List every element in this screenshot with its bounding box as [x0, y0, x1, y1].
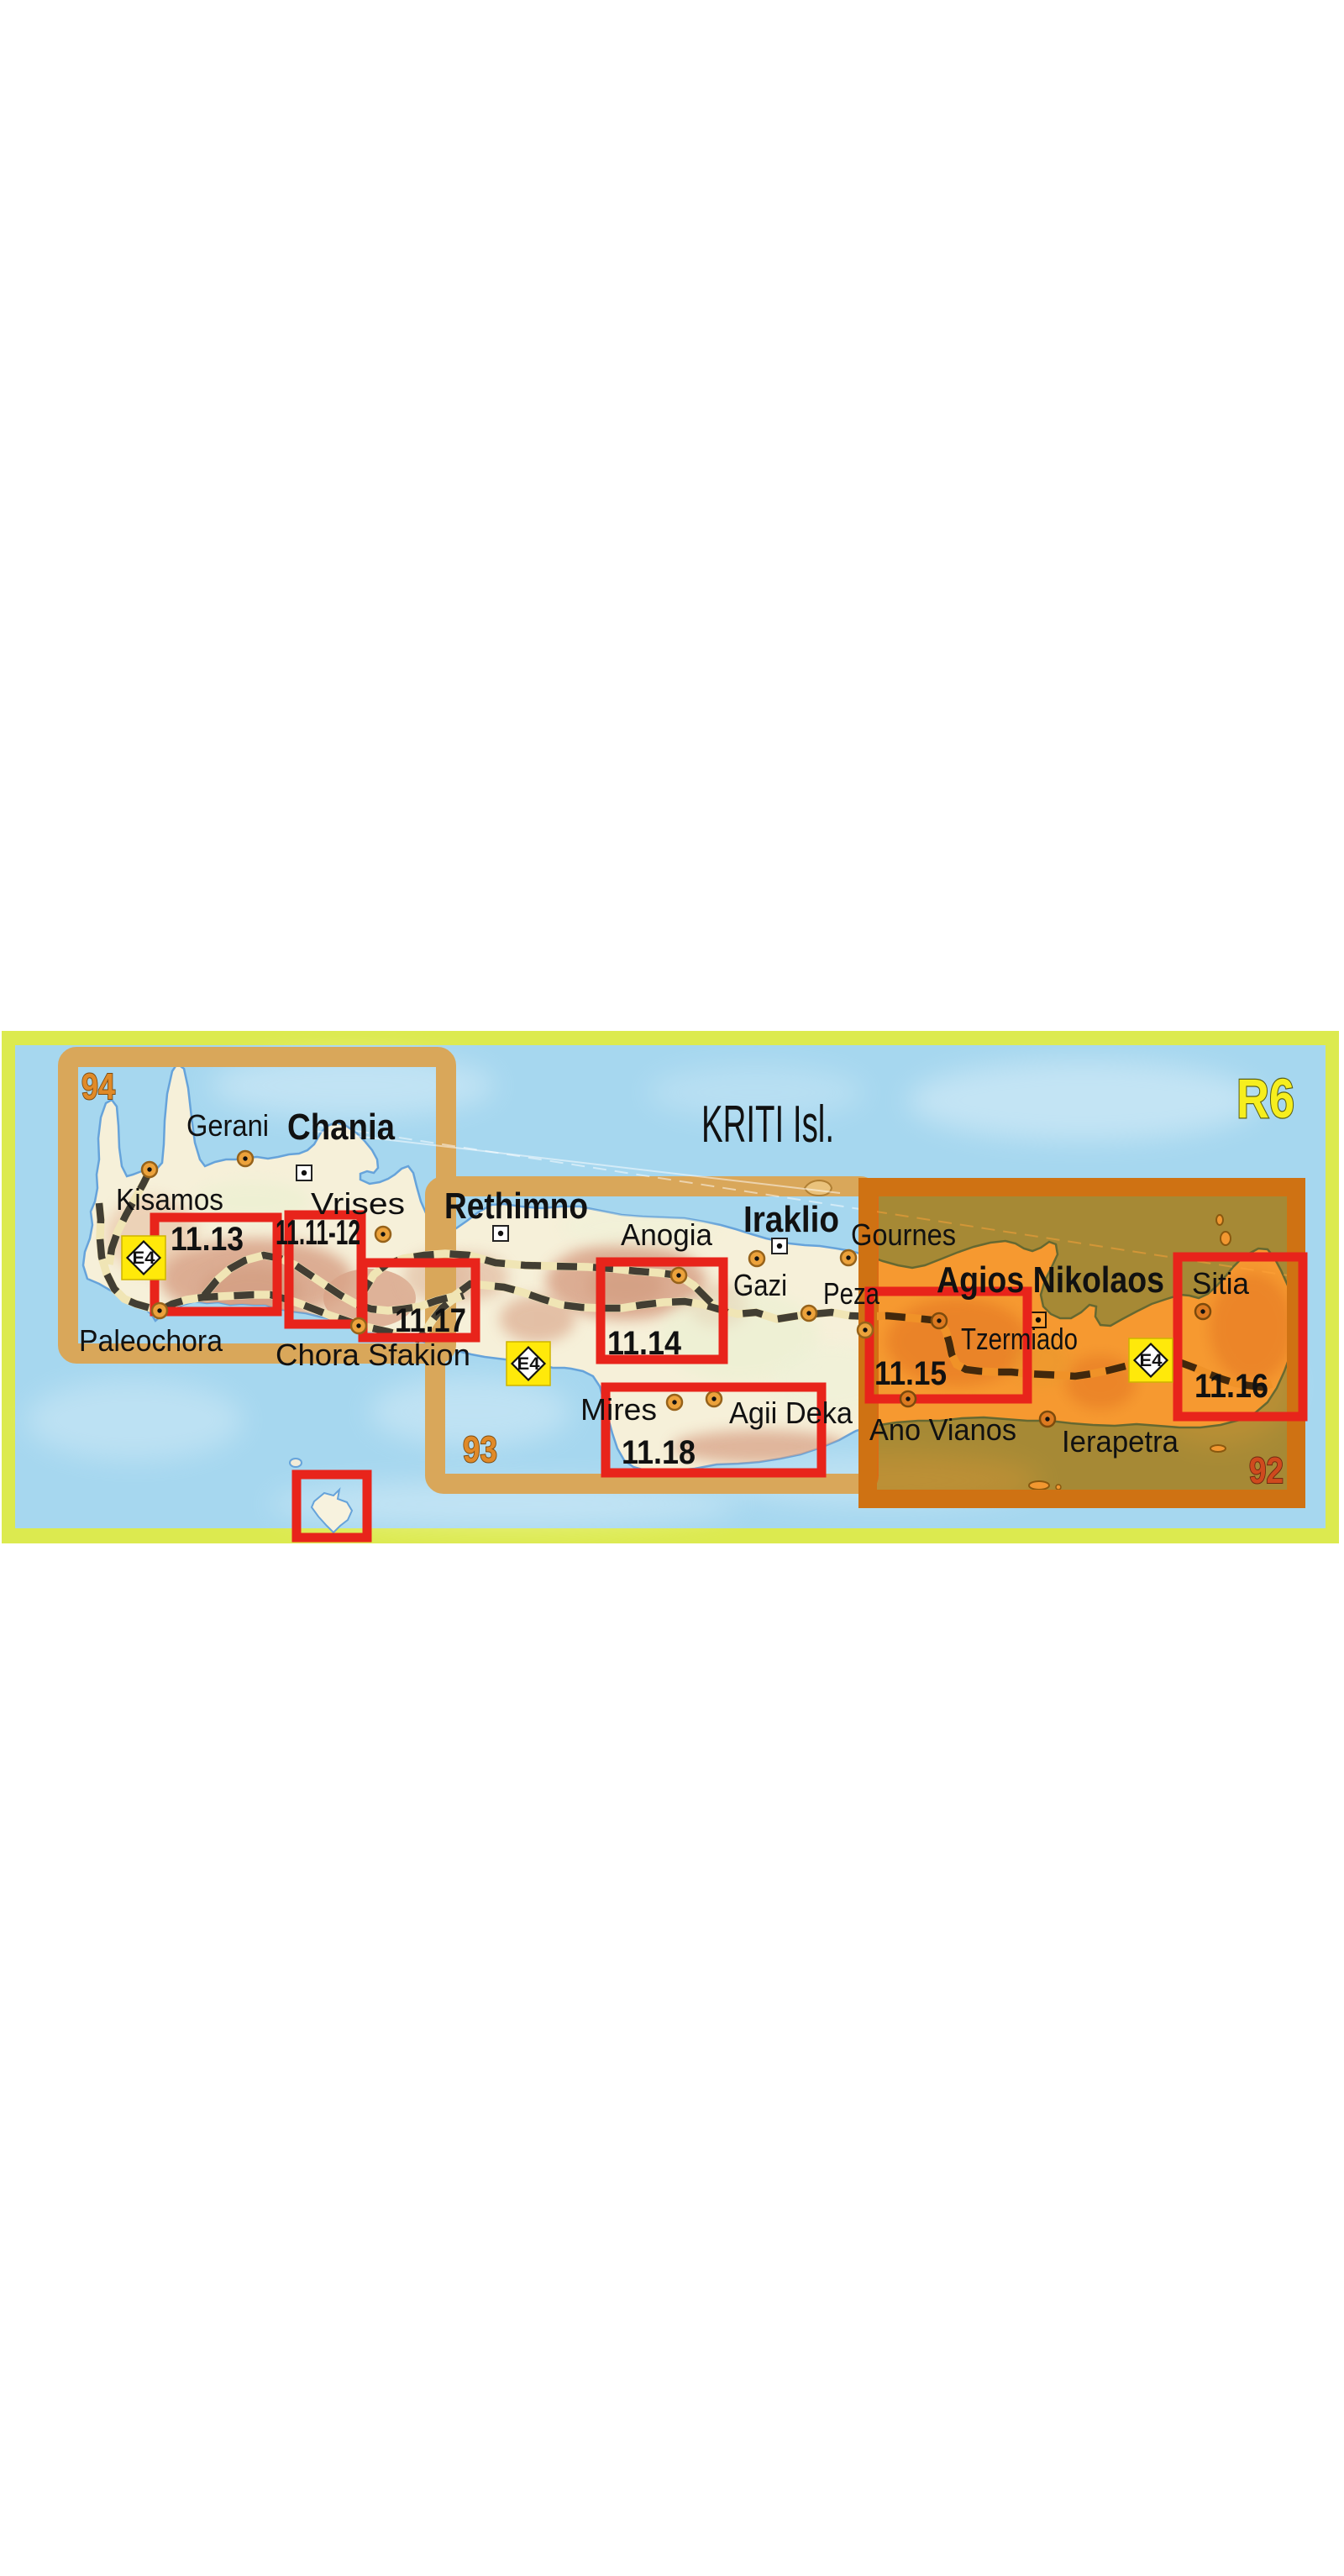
svg-text:11.16: 11.16	[1194, 1368, 1268, 1405]
svg-text:Sitia: Sitia	[1192, 1266, 1250, 1301]
svg-text:11.18: 11.18	[622, 1434, 696, 1471]
svg-text:Tzermiado: Tzermiado	[961, 1322, 1078, 1356]
svg-text:Anogia: Anogia	[621, 1217, 713, 1252]
svg-text:E4: E4	[517, 1354, 540, 1374]
svg-text:11.15: 11.15	[874, 1355, 947, 1392]
svg-text:Chora Sfakion: Chora Sfakion	[276, 1338, 470, 1372]
svg-text:Ierapetra: Ierapetra	[1062, 1424, 1179, 1459]
svg-text:Peza: Peza	[823, 1276, 880, 1311]
svg-text:Paleochora: Paleochora	[79, 1323, 223, 1358]
svg-text:Kisamos: Kisamos	[116, 1182, 223, 1217]
svg-text:Chania: Chania	[287, 1107, 395, 1148]
svg-text:Agii Deka: Agii Deka	[729, 1396, 853, 1430]
svg-text:Iraklio: Iraklio	[743, 1199, 839, 1240]
svg-text:Gazi: Gazi	[733, 1268, 787, 1302]
svg-text:Gerani: Gerani	[186, 1108, 269, 1143]
svg-text:Rethimno: Rethimno	[444, 1185, 588, 1227]
svg-text:11.17: 11.17	[395, 1302, 466, 1339]
svg-text:Agios Nikolaos: Agios Nikolaos	[937, 1259, 1164, 1301]
svg-text:94: 94	[81, 1066, 115, 1107]
svg-text:R6: R6	[1236, 1067, 1294, 1129]
svg-text:E4: E4	[133, 1249, 155, 1268]
svg-text:11.14: 11.14	[607, 1325, 682, 1362]
svg-text:Ano Vianos: Ano Vianos	[869, 1412, 1016, 1447]
svg-text:11.11-12: 11.11-12	[276, 1212, 360, 1252]
svg-text:Mires: Mires	[580, 1392, 657, 1427]
svg-text:KRITI Isl.: KRITI Isl.	[701, 1096, 834, 1154]
svg-text:92: 92	[1249, 1450, 1284, 1491]
svg-text:Gournes: Gournes	[851, 1217, 956, 1252]
svg-text:11.13: 11.13	[171, 1221, 244, 1258]
svg-text:93: 93	[463, 1429, 497, 1470]
svg-text:E4: E4	[1140, 1351, 1163, 1370]
